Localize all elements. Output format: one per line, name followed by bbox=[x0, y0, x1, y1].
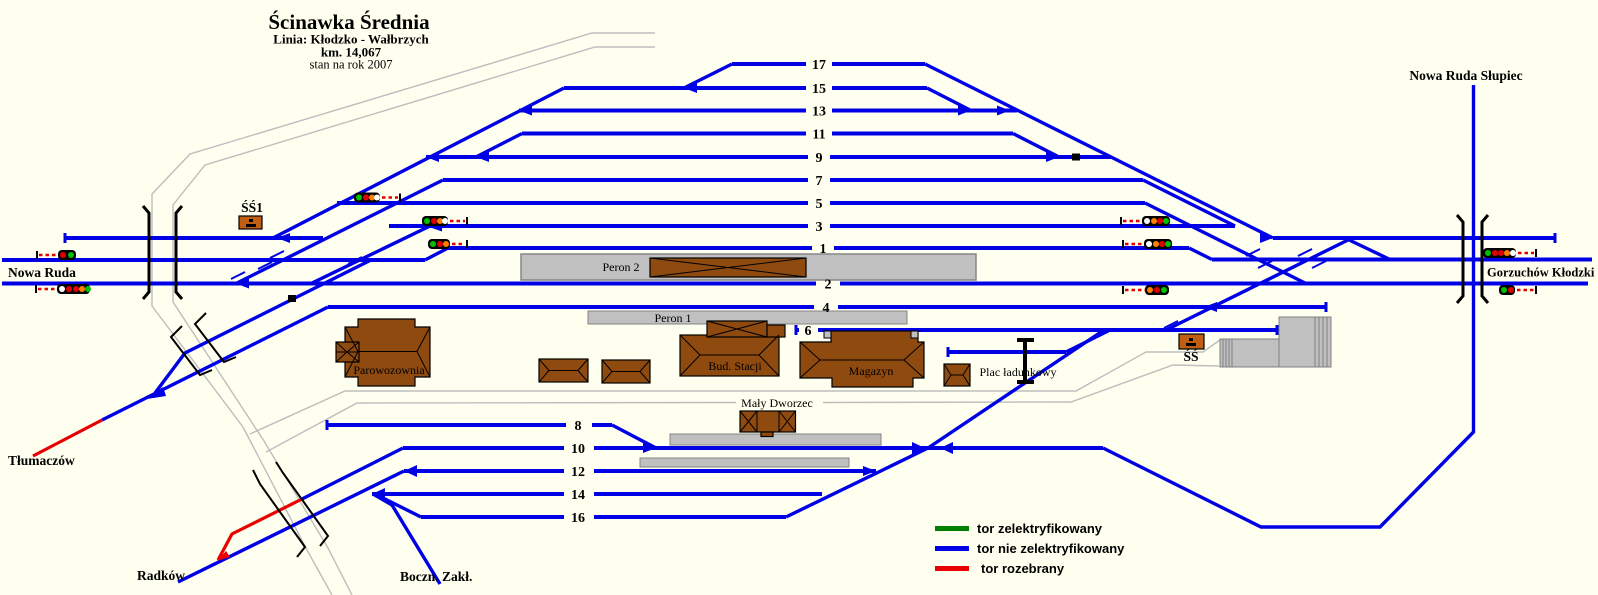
svg-text:3: 3 bbox=[816, 220, 823, 235]
svg-text:Tłumaczów: Tłumaczów bbox=[8, 453, 75, 468]
svg-text:10: 10 bbox=[571, 442, 585, 457]
svg-text:13: 13 bbox=[812, 105, 826, 120]
svg-text:15: 15 bbox=[812, 82, 826, 97]
svg-text:Bud. Stacji: Bud. Stacji bbox=[708, 359, 762, 373]
svg-text:11: 11 bbox=[812, 128, 825, 143]
svg-text:Peron 2: Peron 2 bbox=[603, 260, 640, 274]
svg-text:16: 16 bbox=[571, 511, 585, 526]
svg-text:1: 1 bbox=[820, 242, 827, 257]
svg-text:7: 7 bbox=[816, 174, 823, 189]
svg-text:Ścinawka Średnia: Ścinawka Średnia bbox=[268, 10, 430, 34]
svg-text:6: 6 bbox=[805, 324, 812, 339]
svg-text:5: 5 bbox=[816, 197, 823, 212]
svg-text:Nowa Ruda Słupiec: Nowa Ruda Słupiec bbox=[1409, 68, 1522, 83]
svg-text:4: 4 bbox=[823, 301, 830, 316]
svg-text:Magazyn: Magazyn bbox=[849, 364, 894, 378]
svg-text:Plac ładunkowy: Plac ładunkowy bbox=[980, 365, 1057, 379]
svg-text:12: 12 bbox=[571, 465, 585, 480]
svg-text:stan na rok 2007: stan na rok 2007 bbox=[310, 58, 393, 72]
svg-text:Peron 1: Peron 1 bbox=[655, 311, 692, 325]
svg-text:Radków: Radków bbox=[137, 568, 185, 583]
svg-text:ŚŚ1: ŚŚ1 bbox=[241, 200, 263, 215]
svg-text:ŚŚ: ŚŚ bbox=[1183, 349, 1198, 364]
svg-text:17: 17 bbox=[812, 58, 826, 73]
svg-text:Parowozownia: Parowozownia bbox=[353, 363, 425, 377]
svg-text:2: 2 bbox=[825, 278, 832, 293]
svg-text:Boczn. Zakł.: Boczn. Zakł. bbox=[400, 569, 472, 584]
svg-text:9: 9 bbox=[816, 151, 823, 166]
svg-text:8: 8 bbox=[575, 419, 582, 434]
svg-text:tor rozebrany: tor rozebrany bbox=[981, 561, 1065, 576]
svg-text:tor nie zelektryfikowany: tor nie zelektryfikowany bbox=[977, 541, 1125, 556]
svg-text:14: 14 bbox=[571, 488, 585, 503]
svg-text:Nowa Ruda: Nowa Ruda bbox=[8, 265, 76, 280]
svg-text:Gorzuchów Kłodzki: Gorzuchów Kłodzki bbox=[1487, 266, 1595, 280]
svg-text:Mały Dworzec: Mały Dworzec bbox=[741, 396, 813, 410]
svg-text:tor zelektryfikowany: tor zelektryfikowany bbox=[977, 521, 1103, 536]
